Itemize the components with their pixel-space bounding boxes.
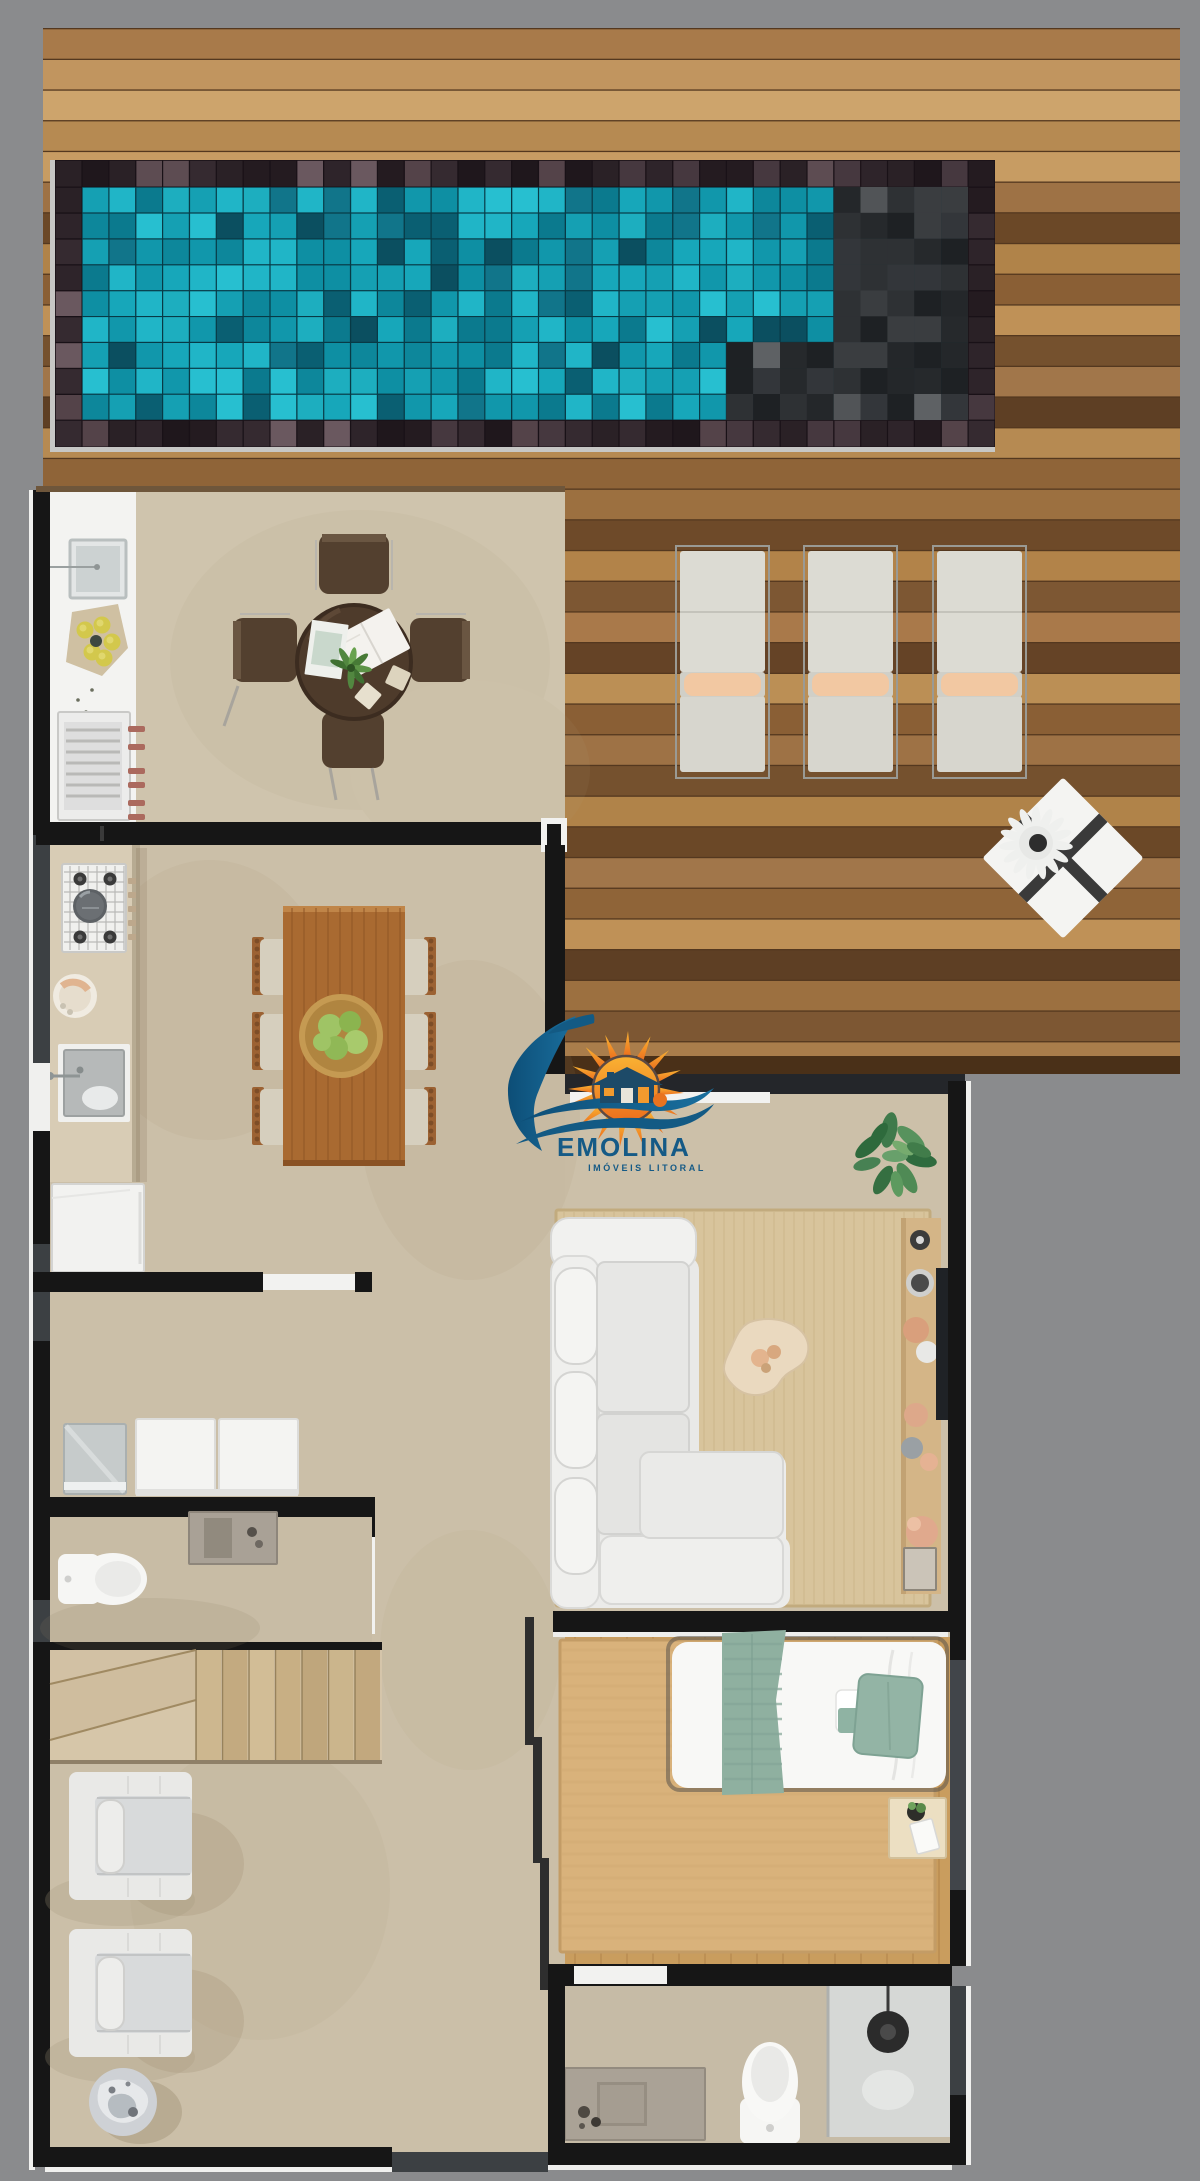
svg-text:IMÓVEIS LITORAL: IMÓVEIS LITORAL: [588, 1162, 706, 1173]
svg-text:EMOLINA: EMOLINA: [557, 1132, 691, 1162]
